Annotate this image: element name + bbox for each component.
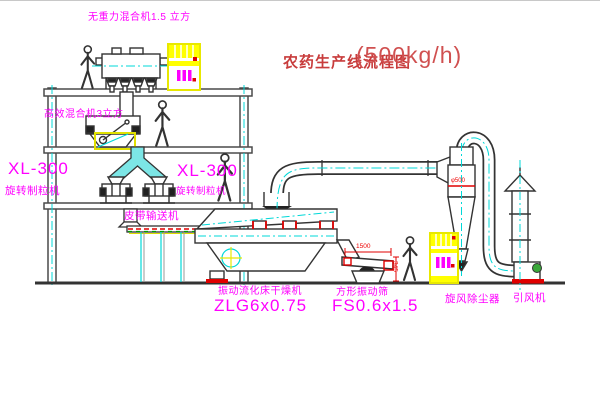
label-granulator-right-name: 旋转制粒机	[176, 187, 226, 197]
label-granulator-right-model: XL-300	[177, 162, 238, 179]
control-cabinet-upper	[168, 44, 200, 90]
diagram-capacity: (500kg/h)	[356, 42, 462, 69]
label-cyclone: 旋风除尘器	[445, 294, 500, 305]
worker-figure-ground	[404, 237, 417, 280]
dryer-exhaust-duct	[262, 160, 438, 215]
worker-figure-floor2	[156, 101, 170, 146]
belt-conveyor	[127, 226, 199, 282]
cad-flow-diagram: 农药生产线流程图 (500kg/h) 无重力混合机1.5 立方 高效混合机3立方…	[0, 0, 600, 403]
induced-draft-fan	[512, 262, 544, 284]
control-cabinet-lower	[430, 233, 458, 283]
label-gravity-mixer: 无重力混合机1.5 立方	[88, 13, 191, 23]
label-belt-conveyor: 皮带输送机	[124, 211, 179, 222]
label-granulator-left-name: 旋转制粒机	[5, 186, 60, 197]
label-fan: 引风机	[513, 293, 546, 304]
label-dryer-model: ZLG6x0.75	[214, 297, 307, 314]
dimension-sieve-length: 1500	[356, 244, 370, 251]
fan-base	[512, 279, 544, 284]
granulator-left	[100, 177, 132, 203]
granulator-right	[143, 177, 175, 203]
worker-figure-roof	[81, 46, 94, 88]
label-sieve-model: FS0.6x1.5	[332, 297, 419, 314]
label-high-eff-mixer: 高效混合机3立方	[44, 110, 124, 120]
label-granulator-left-model: XL-300	[8, 160, 69, 177]
dimension-sieve-height: 345	[391, 261, 398, 272]
gravity-free-mixer	[96, 48, 169, 92]
fluid-bed-dryer	[195, 209, 359, 279]
dimension-cyclone-diameter: φ500	[451, 178, 465, 184]
fan-motor	[533, 264, 542, 273]
